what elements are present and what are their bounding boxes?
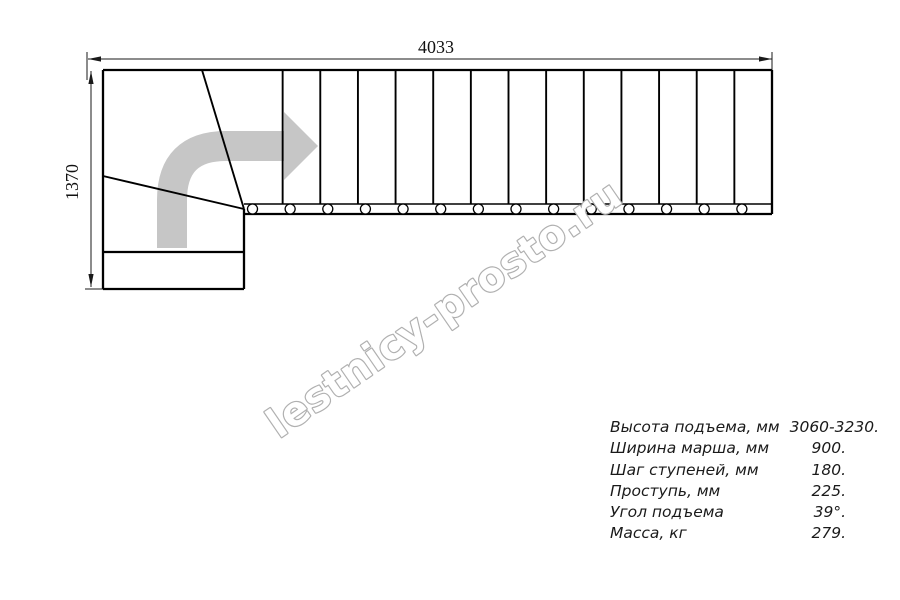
direction-arrow-head: [284, 112, 318, 180]
bolt-circle: [473, 204, 483, 214]
spec-value: 900.: [801, 438, 846, 459]
left-dim-arrow-bottom: [88, 274, 93, 287]
spec-value: 225.: [801, 481, 846, 502]
bolt-circle: [699, 204, 709, 214]
spec-row: Проступь, мм 225.: [610, 481, 846, 502]
top-dimension-label: 4033: [418, 37, 454, 57]
bolt-circle: [737, 204, 747, 214]
spec-value: 279.: [801, 523, 846, 544]
specs-table: Высота подъема, мм 3060-3230. Ширина мар…: [610, 417, 846, 545]
spec-label: Ширина марша, мм: [610, 438, 769, 459]
left-dimension-label: 1370: [62, 164, 82, 200]
spec-value: 39°.: [804, 502, 846, 523]
spec-row: Высота подъема, мм 3060-3230.: [610, 417, 846, 438]
tread-lines: [283, 70, 735, 204]
spec-row: Масса, кг 279.: [610, 523, 846, 544]
spec-label: Высота подъема, мм: [610, 417, 780, 438]
left-dim-arrow-top: [88, 71, 93, 84]
staircase-drawing: 4033 1370 lestnicy-prosto.ru Высота подъ…: [0, 0, 900, 600]
bolt-circle: [360, 204, 370, 214]
spec-row: Ширина марша, мм 900.: [610, 438, 846, 459]
bolt-circle: [248, 204, 258, 214]
bolt-circle: [511, 204, 521, 214]
spec-label: Проступь, мм: [610, 481, 720, 502]
spec-label: Шаг ступеней, мм: [610, 460, 759, 481]
top-dim-arrow-right: [759, 56, 772, 61]
bolt-circle: [285, 204, 295, 214]
spec-row: Угол подъема 39°.: [610, 502, 846, 523]
spec-value: 3060-3230.: [780, 417, 879, 438]
bolt-circle: [436, 204, 446, 214]
top-dim-arrow-left: [88, 56, 101, 61]
bolt-circles: [248, 204, 747, 214]
bolt-circle: [662, 204, 672, 214]
spec-value: 180.: [801, 460, 846, 481]
stair-outline: [103, 70, 772, 289]
bolt-circle: [323, 204, 333, 214]
bolt-circle: [398, 204, 408, 214]
spec-row: Шаг ступеней, мм 180.: [610, 460, 846, 481]
spec-label: Масса, кг: [610, 523, 687, 544]
spec-label: Угол подъема: [610, 502, 724, 523]
